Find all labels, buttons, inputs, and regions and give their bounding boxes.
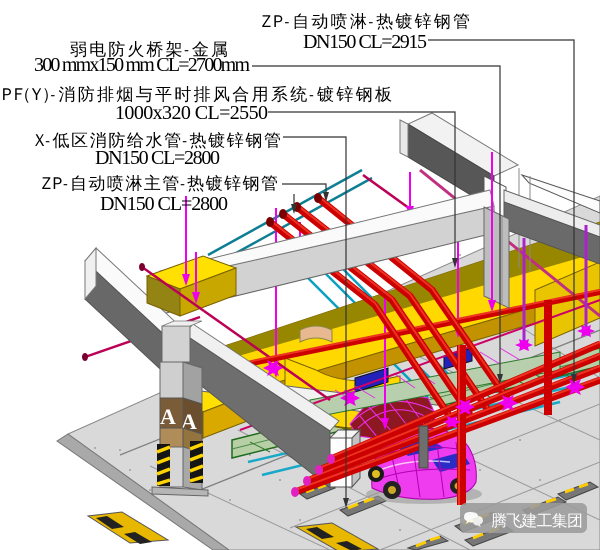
svg-text:DN150 CL=2800: DN150 CL=2800 (95, 147, 220, 169)
svg-text:A: A (160, 404, 176, 429)
svg-text:1000x320 CL=2550: 1000x320 CL=2550 (115, 102, 268, 124)
svg-text:DN150 CL=2915: DN150 CL=2915 (303, 31, 427, 53)
svg-text:DN150 CL=2800: DN150 CL=2800 (100, 193, 228, 215)
svg-text:300 mmx150 mm CL=2700mm: 300 mmx150 mm CL=2700mm (34, 54, 250, 76)
